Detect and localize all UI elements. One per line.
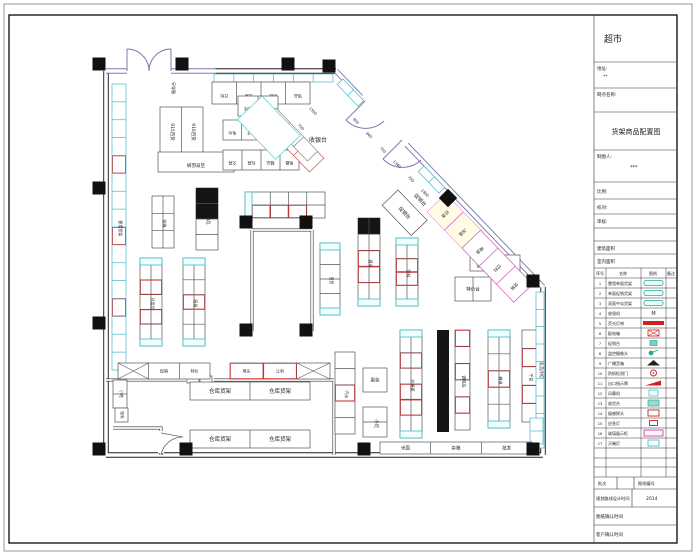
shelf-label: 厨具: [193, 299, 199, 307]
area-label: 配电: [120, 412, 125, 420]
legend-seq: 5: [599, 322, 601, 326]
shelf-label: 饰品: [206, 216, 212, 224]
shelf-cell-label: 仓库货架: [209, 387, 232, 395]
shelf-cell-label: 文具: [229, 160, 237, 166]
shelf-block: 文具玩具精品电器: [223, 150, 299, 170]
shelf-cell-label: 堆头: [243, 367, 251, 373]
drawing-confirm-label: 图纸确认时间: [596, 513, 623, 520]
route-time-label: 规划路线设计时间: [596, 495, 630, 502]
shelf-block: 干货: [522, 330, 537, 422]
legend-seq: 7: [599, 342, 601, 346]
area-label: 916百货: [190, 123, 197, 141]
drafter-label: 制图人:: [597, 153, 612, 160]
shelf-block: 饰品: [196, 188, 218, 250]
legend-symbol: M: [651, 311, 655, 317]
building-area-label: 建筑面积: [597, 245, 615, 252]
review-label: 审核:: [597, 218, 608, 225]
address-label: 地址:: [597, 65, 608, 72]
legend-seq: 12: [598, 392, 603, 396]
legend-name: 玻璃展示柜: [608, 430, 628, 436]
shelf-block: 小吃: [363, 407, 387, 437]
shelf-block: 挂饰: [152, 196, 174, 248]
legend-header-symbol: 图例: [649, 270, 657, 276]
legend-seq: 17: [598, 442, 603, 446]
shelf-block: 厨具: [183, 258, 205, 346]
legend-seq: 3: [599, 302, 601, 306]
shelf-block: [160, 107, 203, 155]
shelf-block: 百货促销: [158, 152, 234, 172]
legend-name: 荧光灯带: [608, 320, 624, 326]
shelf-cell-label: 仓库货架: [269, 435, 292, 443]
shelf-block: 服装: [363, 368, 387, 392]
structural-column: [300, 324, 313, 337]
legend-name: 灭蝇灯: [608, 440, 620, 446]
legend-name: 靠墙单面货架: [608, 280, 632, 286]
structural-column: [180, 443, 193, 456]
legend-name: 防损检测门: [608, 370, 628, 376]
shelf-cell-label: 杂粮: [452, 445, 461, 452]
structural-column: [176, 58, 189, 71]
shelf-block: 仓库货架仓库货架: [190, 382, 310, 400]
legend-seq: 1: [599, 282, 601, 286]
shelf-cell-label: 促销: [160, 367, 168, 373]
shelf-cell-label: 精品: [267, 160, 275, 166]
legend-name: 出口指示牌: [608, 380, 628, 386]
legend-seq: 13: [598, 402, 603, 406]
legend-name: 促销台: [608, 340, 620, 346]
drafter-value: ***: [630, 165, 638, 171]
legend-name: 收货台: [608, 400, 620, 406]
shelf-cell-label: 毛巾: [228, 130, 236, 136]
shelf-block: 百货: [320, 243, 340, 315]
drawing-title: 货架商品配置图: [612, 127, 661, 136]
sheet-no-label: 图纸编号: [638, 480, 655, 487]
shelf-block: 饮料: [396, 238, 418, 306]
structural-column: [240, 324, 253, 337]
check-label: 校对:: [597, 204, 608, 211]
shelf-label: 饮料: [406, 269, 412, 277]
route-time-value: 2014: [646, 496, 658, 502]
area-label: 收银台: [309, 136, 327, 144]
structural-column: [282, 58, 295, 71]
structural-column: [300, 216, 313, 229]
legend-name: 配电箱: [608, 330, 620, 336]
structural-column: [93, 182, 106, 195]
shelf-block: 仓库货架仓库货架: [190, 430, 310, 448]
shelf-label: 干货: [529, 373, 535, 381]
shelf-label: 酒水: [368, 259, 374, 267]
legend-name: 应急灯: [608, 420, 620, 426]
shelf-block: 特价台: [455, 277, 491, 301]
legend-name: 双面中岛货架: [608, 300, 632, 306]
shelf-label: 靠墙货架: [118, 220, 124, 236]
legend-name: 监控摄像头: [608, 350, 628, 356]
shelf-cell-label: 米面: [401, 445, 410, 452]
shelf-label: 日用品: [150, 297, 155, 309]
shelf-cell-label: 特价: [191, 367, 199, 373]
area-label: 915百货: [169, 123, 176, 141]
solid-shelf-bar: [437, 330, 449, 432]
structural-column: [527, 443, 540, 456]
area-label: 服务台: [170, 82, 176, 94]
drawing-sheet: 靠墙货架日化洗涤化妆饰品百货促销洗化纸品毛巾袜子内衣文具玩具精品电器挂饰饰品日用…: [0, 0, 700, 555]
shelf-cell-label: 仓库货架: [209, 435, 232, 443]
shelf-label: 服装: [371, 377, 380, 384]
structural-column: [93, 58, 106, 71]
batch-label: 批次: [598, 480, 607, 487]
shelf-label: 百货: [329, 276, 335, 284]
address-value: **: [603, 74, 608, 80]
shelf-block: 日用品: [140, 258, 162, 346]
shelf-block: 粮油: [488, 330, 510, 428]
scale-label: 比例:: [597, 188, 608, 195]
legend-name: 风幕机: [608, 390, 620, 396]
structural-column: [93, 317, 106, 330]
shelf-block: [214, 74, 333, 82]
shelf-block: 靠墙货架: [112, 84, 126, 370]
structural-column: [358, 443, 371, 456]
legend-name: 单面促销货架: [608, 290, 632, 296]
shelf-cell-label: 批发: [502, 445, 511, 452]
shelf-cell-label: 玩具: [248, 160, 256, 166]
shelf-cell-label: 饰品: [294, 93, 302, 99]
legend-seq: 10: [598, 372, 603, 376]
shelf-label: 方便面: [410, 379, 416, 391]
legend-seq: 11: [598, 382, 603, 386]
legend-name: 收银机: [608, 310, 620, 316]
shelf-block: 促销特价: [118, 363, 210, 379]
structural-column: [527, 275, 540, 288]
shelf-label: 挂饰: [162, 219, 168, 227]
shelf-block: 方便面: [400, 330, 422, 438]
area-label: 乳品冷柜: [539, 362, 545, 378]
legend-name: 广播音箱: [608, 360, 624, 366]
shelf-label: 特价台: [466, 286, 480, 293]
structural-column: [323, 60, 336, 73]
legend-header-name: 名称: [619, 270, 627, 276]
legend-seq: 16: [598, 432, 603, 436]
client-confirm-label: 客户确认时间: [596, 531, 623, 538]
legend-seq: 14: [598, 412, 603, 416]
outlet-label: 网点名称:: [597, 91, 617, 98]
structural-column: [93, 443, 106, 456]
shelf-label: 汽水: [344, 390, 350, 398]
shelf-cell-label: 日化: [220, 93, 228, 99]
interior-area-label: 室内面积: [597, 258, 615, 265]
shelf-label: 小吃: [373, 419, 380, 428]
shelf-block: 汽水: [335, 352, 355, 434]
shelf-cell-label: 仓库货架: [269, 387, 292, 395]
shelf-cell-label: 让利: [276, 367, 284, 373]
legend-seq: 15: [598, 422, 603, 426]
area-label: 小吃: [119, 390, 125, 398]
legend-seq: 2: [599, 292, 601, 296]
shelf-block: [245, 192, 325, 218]
legend-name: 烟感探头: [608, 410, 624, 416]
shelf-label: 调味品: [462, 375, 468, 387]
structural-column: [240, 216, 253, 229]
legend-header-seq: 序号: [596, 270, 604, 276]
shelf-block: 调味品: [455, 330, 470, 430]
shelf-label: 百货促销: [187, 162, 205, 169]
shelf-block: 堆头让利: [230, 363, 330, 379]
shelf-block: 酒水: [358, 218, 380, 306]
store-title: 超市: [604, 33, 622, 45]
shelf-label: 粮油: [498, 376, 504, 384]
legend-header-note: 备注: [667, 270, 675, 276]
shelf-block: [530, 418, 543, 444]
shelf-block: 米面杂粮批发: [380, 442, 532, 454]
shelf-cell-label: 电器: [286, 160, 294, 166]
